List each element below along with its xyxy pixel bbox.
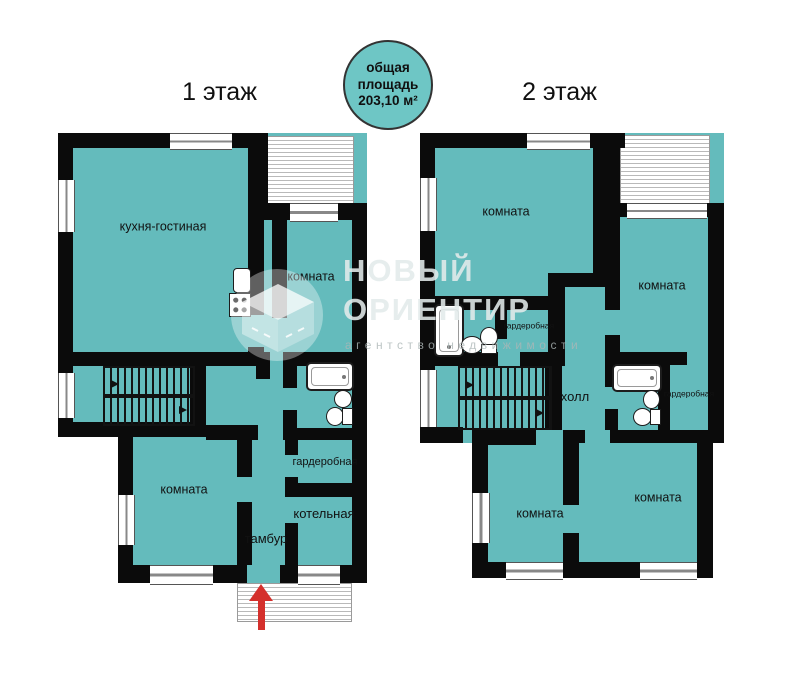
wall xyxy=(605,287,620,310)
badge-line1: общая xyxy=(366,60,410,77)
floor1-title: 1 этаж xyxy=(152,78,287,107)
wall xyxy=(697,430,713,578)
room-label-wardrobe-right: гардеробная xyxy=(664,390,714,399)
window xyxy=(298,565,340,585)
floor1-stairs xyxy=(103,366,195,426)
sink-icon xyxy=(643,390,660,409)
window xyxy=(420,370,437,427)
entry-door-opening xyxy=(247,565,280,583)
watermark-cube-logo-icon xyxy=(238,278,318,354)
floor2-stairs xyxy=(458,366,552,430)
floor2-outside-cut xyxy=(713,443,724,583)
room-label-room-bottom-right: комната xyxy=(634,491,681,504)
wall xyxy=(708,203,724,443)
wall xyxy=(285,477,298,497)
window xyxy=(58,180,75,232)
window xyxy=(150,565,213,585)
window xyxy=(420,178,437,231)
window xyxy=(170,133,232,150)
room-label-hall: холл xyxy=(561,390,589,404)
wall xyxy=(283,410,297,430)
wall xyxy=(285,440,298,455)
window xyxy=(290,203,338,222)
room-label-room-top-left: комната xyxy=(482,205,529,218)
window xyxy=(472,493,490,543)
room-label-vestibule: тамбур xyxy=(245,532,288,546)
wall xyxy=(420,427,463,443)
wall xyxy=(472,430,536,445)
window xyxy=(118,495,135,545)
room-label-room-bottom-left: комната xyxy=(516,507,563,520)
wall xyxy=(610,430,724,443)
stairs-rail xyxy=(105,394,193,398)
wall xyxy=(237,440,252,477)
wall xyxy=(563,533,579,568)
wall xyxy=(206,425,258,440)
badge-line3: 203,10 м² xyxy=(358,93,418,110)
window xyxy=(640,562,697,580)
wall xyxy=(593,133,620,287)
stairs-arrow-icon xyxy=(179,406,187,414)
window xyxy=(58,373,75,418)
watermark-subtitle: агентство недвижимости xyxy=(345,338,582,352)
stairs-rail xyxy=(460,396,550,400)
floor1-terrace-hatch xyxy=(266,136,354,205)
wall xyxy=(283,366,297,388)
watermark-line2: ОРИЕНТИР xyxy=(343,294,531,325)
badge-line2: площадь xyxy=(358,77,419,94)
window xyxy=(527,133,590,150)
wall xyxy=(563,430,585,443)
total-area-badge: общая площадь 203,10 м² xyxy=(343,40,433,130)
room-label-kitchen-living: кухня-гостиная xyxy=(120,220,207,233)
room-label-room-bottom: комната xyxy=(160,483,207,496)
floor1-outside-cut xyxy=(58,437,118,583)
bathtub-icon xyxy=(306,362,354,391)
floor2-terrace-hatch xyxy=(620,135,710,205)
floor2-title: 2 этаж xyxy=(492,78,627,107)
room-label-wardrobe: гардеробная xyxy=(293,457,358,469)
stairs-arrow-icon xyxy=(466,381,474,389)
room-label-boiler: котельная xyxy=(293,507,354,521)
floor2-outside-cut xyxy=(420,443,472,583)
watermark-line1: НОВЫЙ xyxy=(343,255,475,286)
stairs-arrow-icon xyxy=(536,409,544,417)
toilet-tank-icon xyxy=(342,408,353,425)
floorplan-page: 1 этаж 2 этаж общая площадь 203,10 м² xyxy=(0,0,803,700)
window xyxy=(627,203,707,219)
room-label-room-top-right: комната xyxy=(638,279,685,292)
toilet-tank-icon xyxy=(650,409,661,425)
wall xyxy=(58,133,268,148)
wall xyxy=(283,428,352,440)
sink-icon xyxy=(334,390,352,408)
stairs-arrow-icon xyxy=(111,380,119,388)
wall xyxy=(605,409,618,430)
wall xyxy=(58,352,268,366)
bathtub-icon xyxy=(612,364,662,392)
wall xyxy=(563,443,579,505)
wall xyxy=(298,483,352,497)
window xyxy=(506,562,563,580)
entrance-arrow-shaft xyxy=(258,600,265,630)
entrance-arrow-icon xyxy=(249,584,273,601)
